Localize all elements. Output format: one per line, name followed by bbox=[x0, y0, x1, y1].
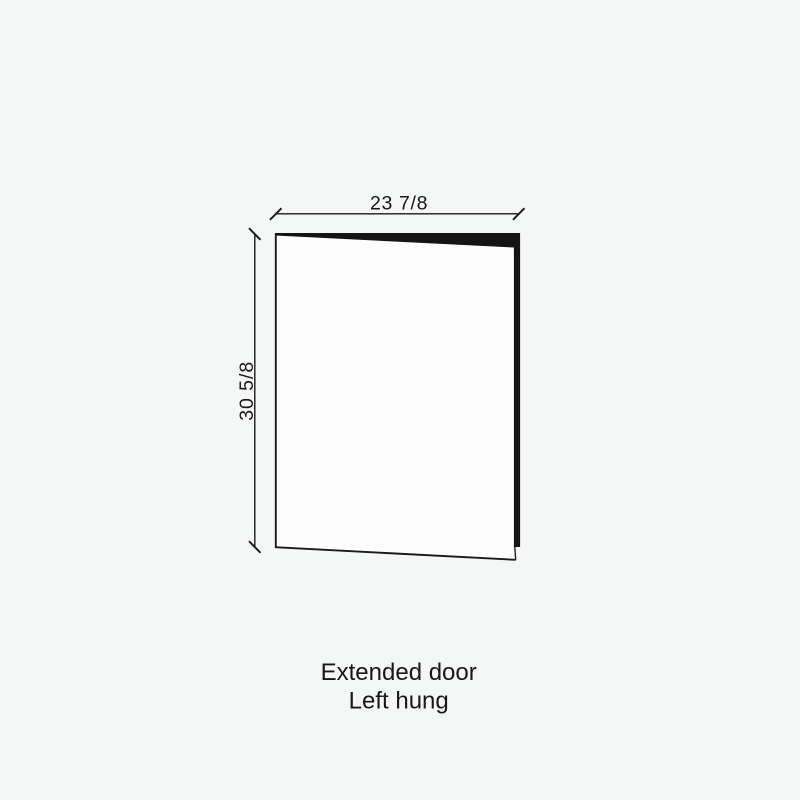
svg-text:30 5/8: 30 5/8 bbox=[236, 362, 258, 421]
svg-text:Left hung: Left hung bbox=[349, 688, 449, 715]
svg-text:Extended door: Extended door bbox=[321, 659, 477, 686]
svg-text:23 7/8: 23 7/8 bbox=[370, 193, 428, 215]
